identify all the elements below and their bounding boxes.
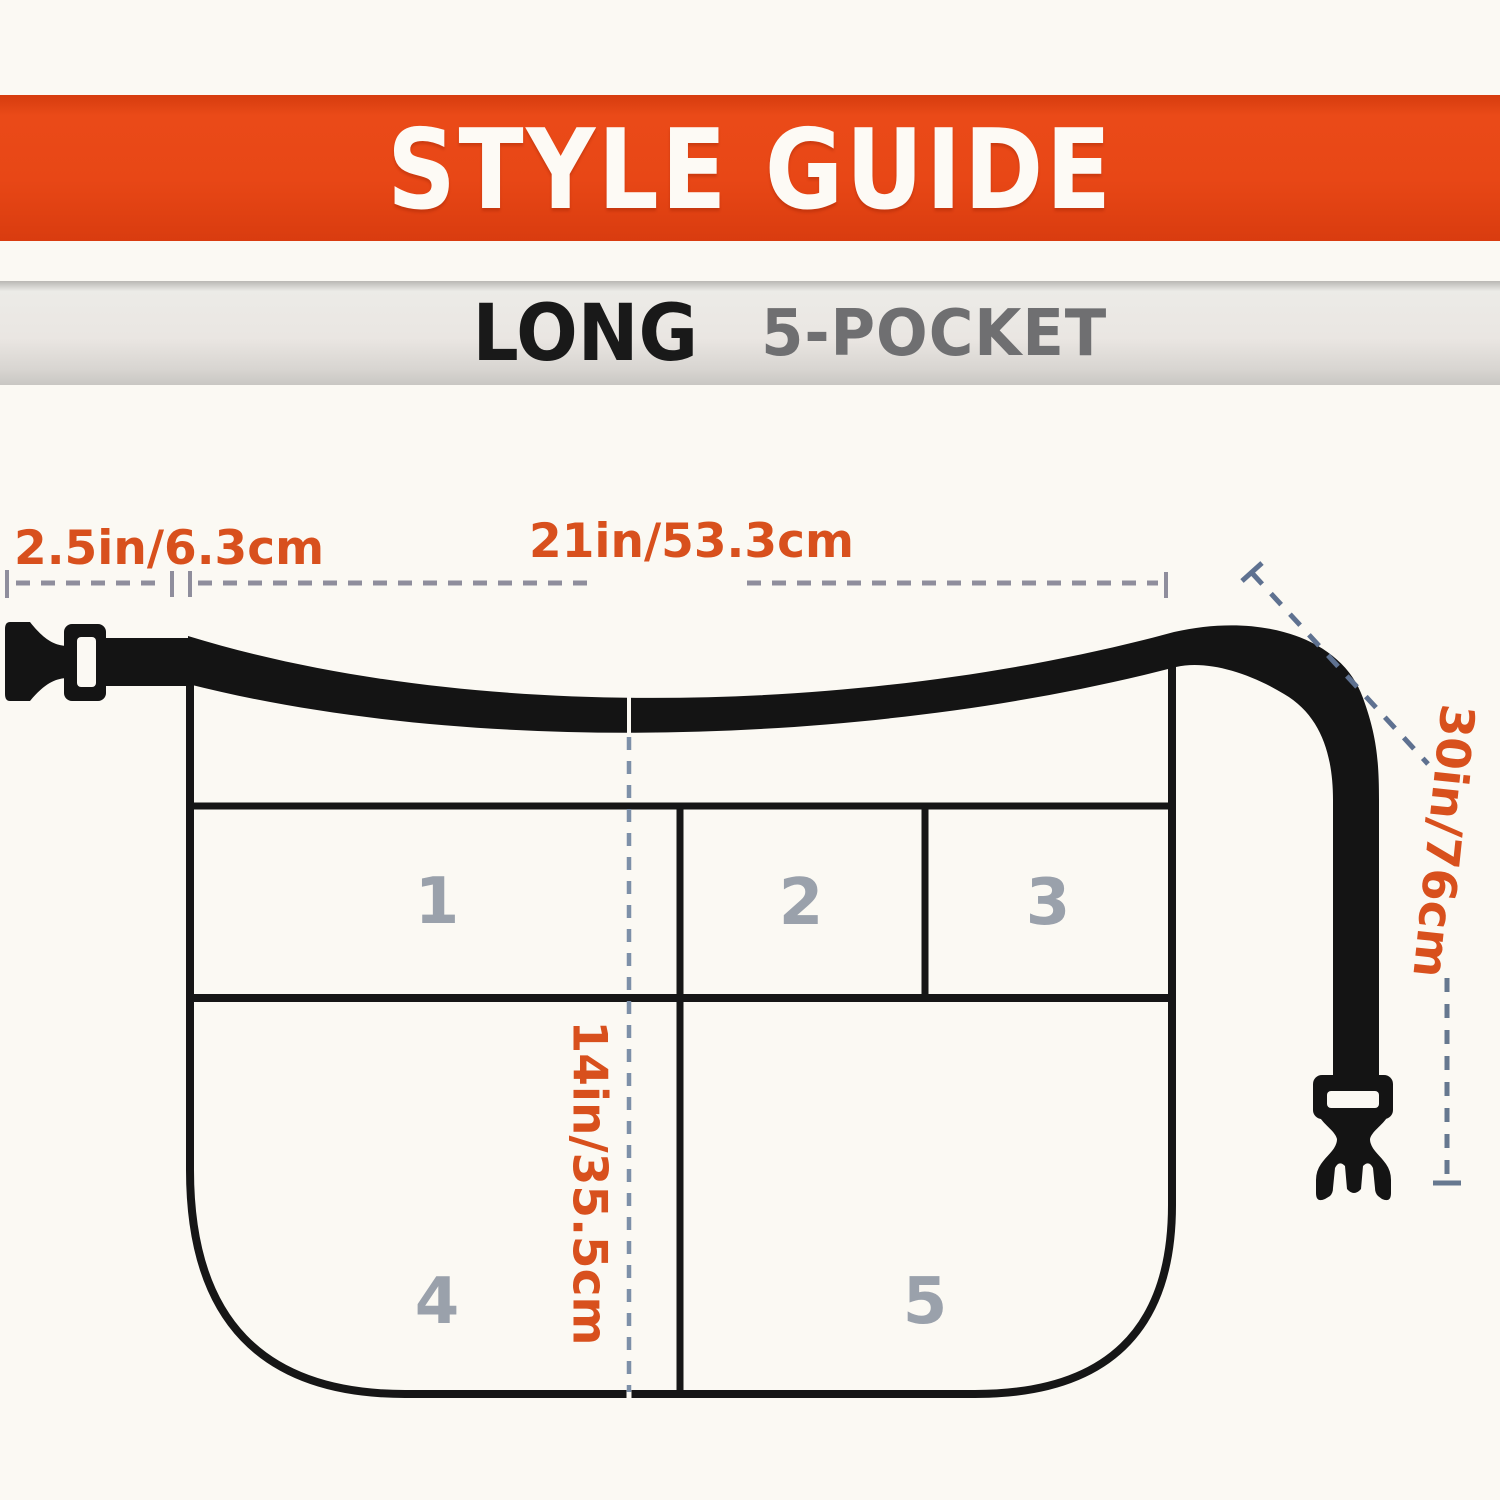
left-strap	[100, 638, 192, 686]
waistband-and-right-strap	[188, 625, 1379, 1078]
apron-diagram	[0, 0, 1500, 1500]
measurement-top-width: 21in/53.3cm	[529, 514, 854, 569]
left-buckle-slot	[77, 637, 96, 687]
right-buckle-slot	[1327, 1091, 1379, 1108]
right-buckle-fork-icon	[1316, 1115, 1391, 1200]
pocket-3-label: 3	[1026, 866, 1071, 940]
pocket-2-label: 2	[779, 866, 824, 940]
left-buckle-icon	[5, 622, 66, 701]
pocket-4-label: 4	[415, 1265, 460, 1339]
pocket-1-label: 1	[415, 865, 460, 939]
measurement-center-height: 14in/35.5cm	[562, 1021, 617, 1346]
measurement-strap-offset: 2.5in/6.3cm	[14, 521, 324, 576]
style-guide-page: { "header": { "title": "STYLE GUIDE" }, …	[0, 0, 1500, 1500]
pocket-5-label: 5	[903, 1265, 948, 1339]
